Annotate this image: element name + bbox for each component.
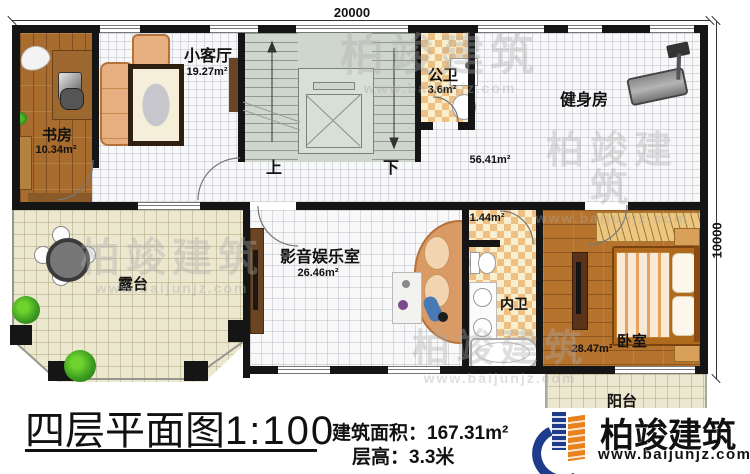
- window: [650, 25, 694, 33]
- terrace-pillar: [184, 361, 208, 381]
- building-area-value: 167.31m²: [427, 423, 508, 444]
- title-underline: [25, 449, 317, 452]
- stair-floor: [245, 33, 298, 162]
- logo: [532, 410, 596, 470]
- bedside-table: [674, 228, 700, 246]
- room-area-closet: 1.44m²: [470, 213, 505, 225]
- wall-bath-right: [536, 202, 543, 374]
- window: [568, 25, 602, 33]
- wall-public-bath-bottom: [458, 122, 475, 130]
- top-dimension-line: [12, 20, 710, 21]
- bedroom-tv: [576, 262, 581, 314]
- room-area-bedroom: 28.47m²: [572, 344, 613, 356]
- pillow: [672, 253, 696, 293]
- stair-floor: [372, 33, 415, 162]
- wall-mid: [12, 202, 138, 210]
- room-label-inner-bath: 内卫: [500, 297, 528, 312]
- window: [478, 25, 544, 33]
- table-flowers: [398, 300, 408, 310]
- table-plate: [402, 280, 410, 288]
- wall-bottom-bedroom: [543, 366, 615, 374]
- desk-chair: [60, 88, 84, 110]
- room-area-small-living: 19.27m²: [187, 67, 228, 79]
- floor-height-label: 层高：: [352, 447, 409, 468]
- stair-down-label: 下: [383, 161, 399, 178]
- terrace-sliding-door: [138, 202, 200, 210]
- wall-closet-bottom: [469, 240, 500, 247]
- building-area-line: 建筑面积：167.31m²: [332, 418, 508, 445]
- building-area-label: 建筑面积：: [332, 423, 427, 444]
- window: [100, 25, 140, 33]
- room-label-public-bath: 公卫: [428, 68, 458, 84]
- plan-scale: 1:100: [225, 409, 335, 453]
- plan-title-text: 四层平面图: [25, 409, 225, 453]
- floor-plan-canvas: 20000 10000: [0, 0, 750, 474]
- wall-public-bath-bottom: [415, 122, 433, 130]
- wall-bath-left: [462, 202, 469, 374]
- window: [278, 366, 330, 374]
- room-area-media-room: 26.46m²: [298, 268, 339, 280]
- balcony-sliding-door: [615, 366, 695, 374]
- wall-study-right: [92, 25, 99, 168]
- sink-round: [473, 288, 492, 307]
- elevator-x-box: [306, 94, 362, 148]
- logo-building-blue: [552, 412, 566, 450]
- right-dimension-label: 10000: [710, 231, 725, 259]
- terrace-floor: [12, 210, 250, 382]
- bathtub-inner: [476, 342, 530, 363]
- room-label-study: 书房: [42, 128, 72, 144]
- wall-right: [700, 25, 708, 374]
- wall-stairs-right: [415, 25, 421, 162]
- toilet-bowl: [478, 252, 496, 274]
- terrace-pillar: [10, 325, 32, 345]
- tv-cabinet: [229, 58, 238, 112]
- couch-cushion: [424, 236, 450, 270]
- elevator-slot: [313, 82, 355, 90]
- wall-bottom-bedroom: [695, 366, 708, 374]
- wall-media-left: [243, 202, 250, 378]
- window: [388, 366, 440, 374]
- armchair: [132, 34, 170, 68]
- media-tv: [253, 250, 258, 310]
- wall-public-bath-right: [468, 25, 475, 130]
- wall-mid: [628, 202, 708, 210]
- plant: [12, 296, 40, 324]
- room-area-gym: 56.41m²: [470, 155, 511, 167]
- stair-up-label: 上: [266, 161, 282, 178]
- room-label-bedroom: 卧室: [617, 334, 647, 350]
- plan-title: 四层平面图1:100: [25, 398, 335, 456]
- room-label-terrace: 露台: [118, 277, 148, 293]
- person-head: [438, 312, 448, 322]
- bed-blanket: [616, 252, 670, 338]
- floor-height-line: 层高：3.3米: [352, 442, 454, 469]
- right-dimension-line: [716, 21, 717, 379]
- sink-round: [473, 318, 492, 337]
- bedside-table: [674, 344, 700, 362]
- rug: [128, 64, 184, 146]
- window: [210, 25, 258, 33]
- room-label-media-room: 影音娱乐室: [280, 250, 360, 267]
- study-side-cabinet: [28, 193, 92, 202]
- wall-left: [12, 25, 20, 210]
- room-label-gym: 健身房: [560, 93, 608, 110]
- pillow: [672, 296, 696, 336]
- floor-height-value: 3.3米: [409, 447, 454, 468]
- wall-stairs-left: [238, 25, 245, 162]
- logo-url: www.baijunjz.com: [598, 446, 750, 463]
- room-area-study: 10.34m²: [36, 145, 77, 157]
- top-dimension-label: 20000: [334, 5, 370, 20]
- room-label-small-living: 小客厅: [184, 49, 232, 66]
- terrace-table: [46, 238, 90, 282]
- logo-building-orange: [568, 415, 585, 461]
- stair-window: [296, 25, 408, 33]
- terrace-railing: [12, 210, 14, 338]
- room-area-public-bath: 3.6m²: [428, 85, 457, 97]
- plant: [64, 350, 96, 382]
